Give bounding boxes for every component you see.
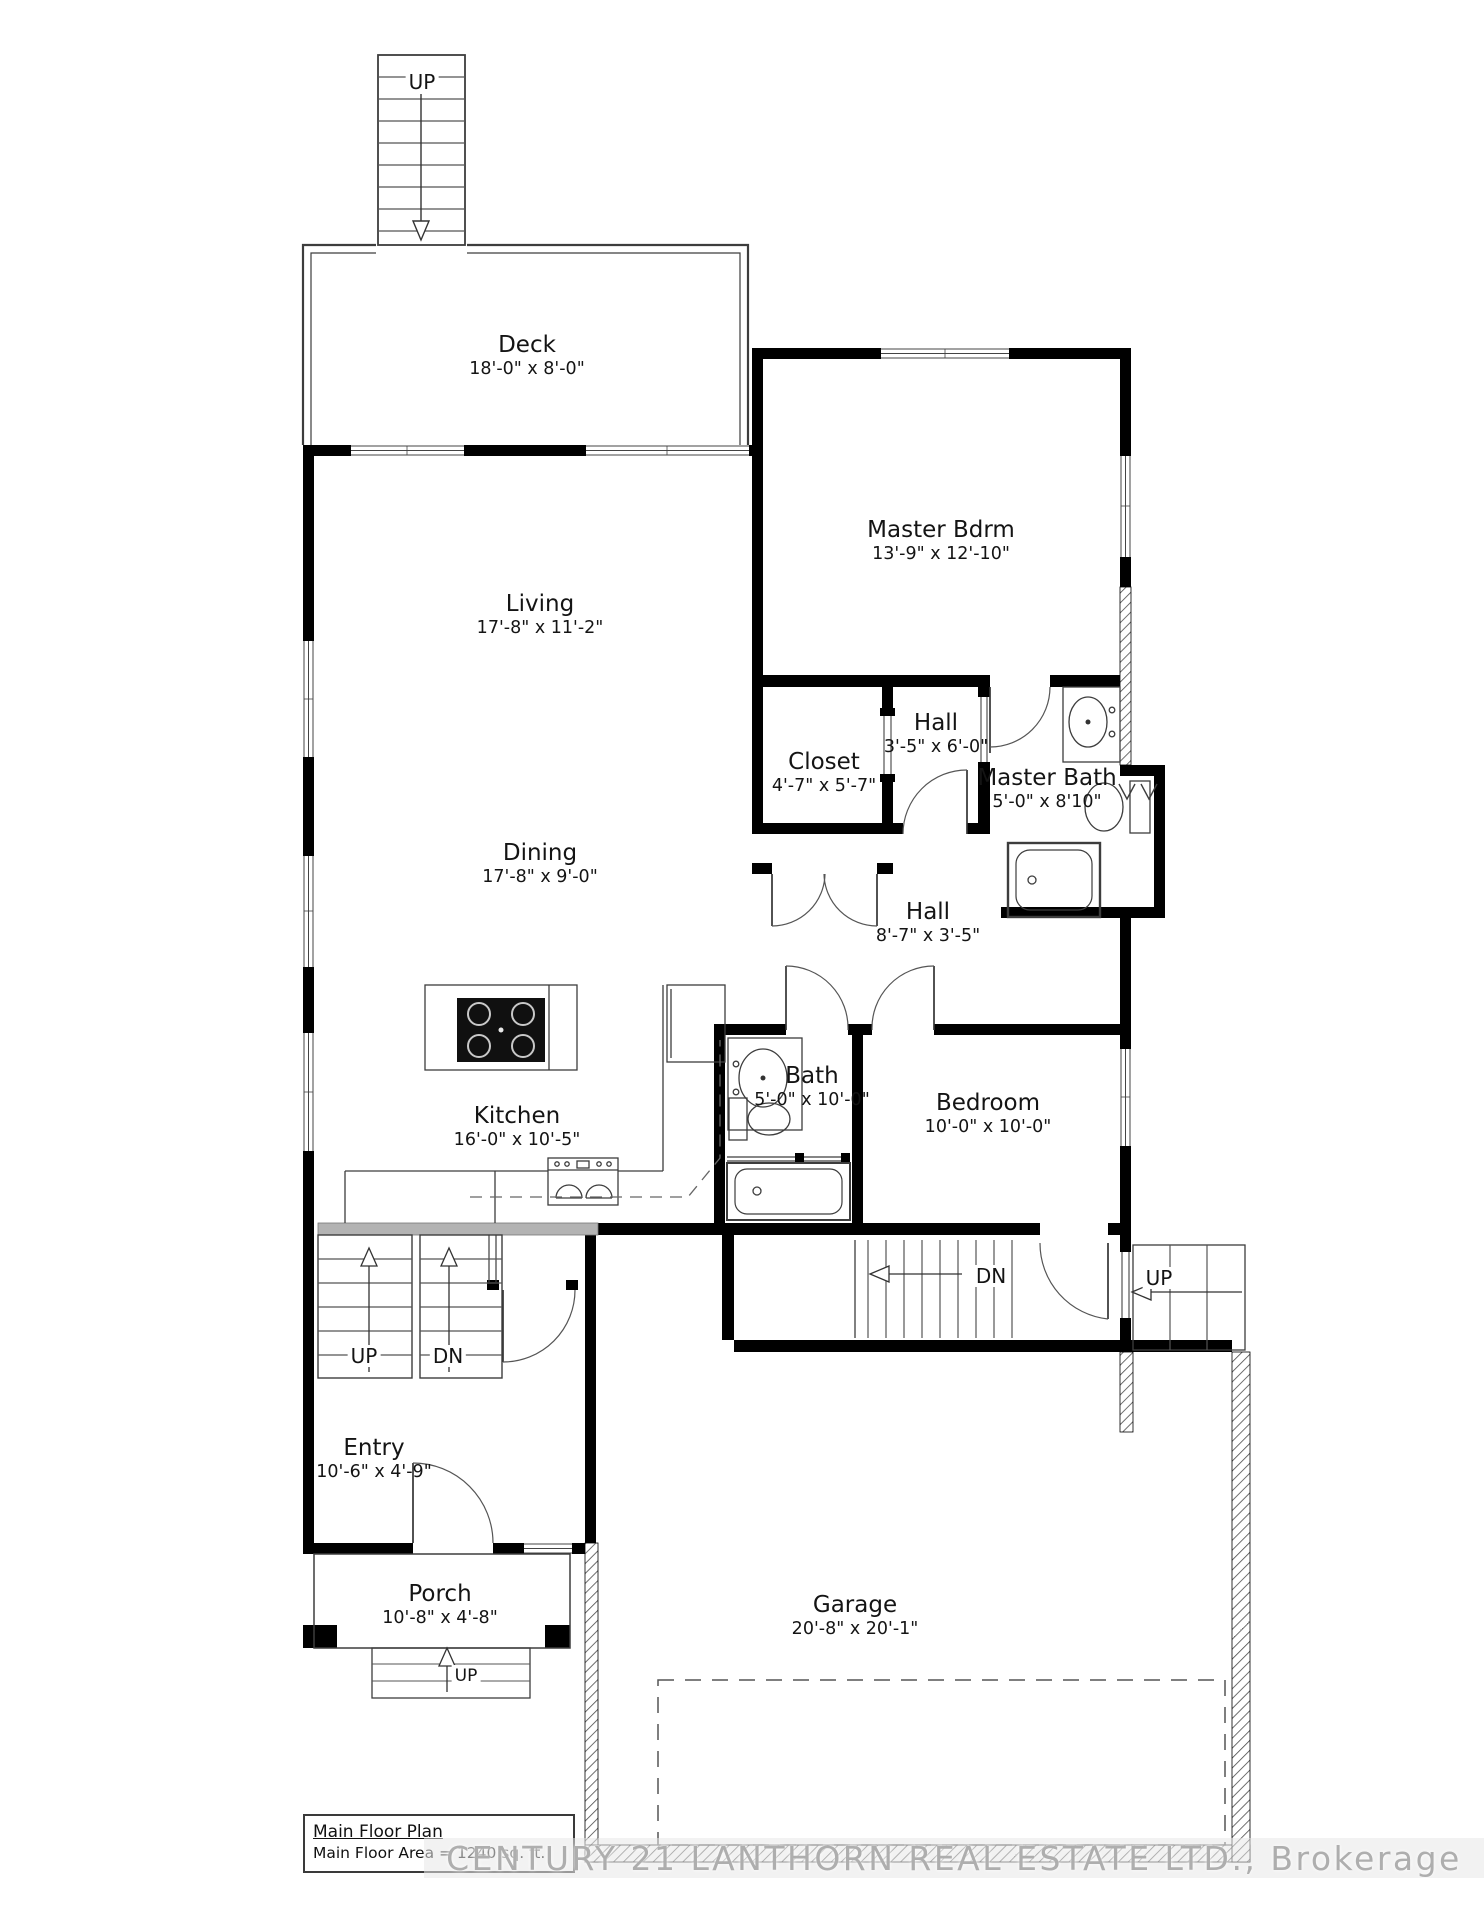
hall-door [903, 770, 967, 834]
sink-icon [1063, 687, 1120, 762]
window [1120, 1045, 1131, 1150]
room-label-master-bath: Master Bath 5'-0" x 8'10" [977, 765, 1116, 813]
bathtub-icon [1008, 843, 1100, 917]
room-label-master-bdrm: Master Bdrm 13'-9" x 12'-10" [867, 517, 1015, 565]
room-label-bedroom: Bedroom 10'-0" x 10'-0" [925, 1090, 1052, 1138]
window [1120, 452, 1131, 561]
room-label-hall-upper: Hall 3'-5" x 6'-0" [884, 710, 988, 758]
basement-stairs-dn-label: DN [973, 1265, 1009, 1287]
entry-stairs [318, 1235, 502, 1378]
window [582, 445, 753, 456]
entry-closet-door [487, 1280, 578, 1362]
deck-stairs-up-label: UP [406, 71, 439, 93]
brokerage-watermark: CENTURY 21 LANTHORN REAL ESTATE LTD., Br… [424, 1838, 1484, 1878]
room-label-living: Living 17'-8" x 11'-2" [477, 591, 604, 639]
kitchen-sink-icon [548, 1158, 618, 1205]
room-label-porch: Porch 10'-8" x 4'-8" [382, 1581, 498, 1629]
garage-dashed-outline [658, 1680, 1225, 1845]
room-label-deck: Deck 18'-0" x 8'-0" [469, 332, 585, 380]
window [303, 1029, 314, 1155]
stair-header [318, 1223, 598, 1235]
room-label-bath: Bath 5'-0" x 10'-0" [754, 1063, 870, 1111]
room-label-closet: Closet 4'-7" x 5'-7" [772, 749, 876, 797]
bath-door [786, 966, 848, 1030]
floor-plan-page: Deck 18'-0" x 8'-0" Living 17'-8" x 11'-… [0, 0, 1484, 1920]
basement-door [1040, 1243, 1108, 1319]
bifold-marks [1119, 784, 1157, 799]
room-label-garage: Garage 20'-8" x 20'-1" [792, 1592, 919, 1640]
shower-door [727, 1153, 850, 1162]
floor-plan-drawing [0, 0, 1484, 1920]
room-label-hall-lower: Hall 8'-7" x 3'-5" [876, 899, 980, 947]
side-entry-steps [1132, 1245, 1245, 1350]
up-arrow-icon [361, 1248, 377, 1266]
up-arrow-icon [441, 1248, 457, 1266]
room-label-dining: Dining 17'-8" x 9'-0" [482, 840, 598, 888]
porch-steps-up-label: UP [452, 1665, 481, 1687]
room-label-kitchen: Kitchen 16'-0" x 10'-5" [454, 1103, 581, 1151]
window [347, 445, 468, 456]
window [520, 1543, 576, 1554]
up-arrow-icon [439, 1648, 455, 1666]
master-bath-door [990, 687, 1050, 753]
entry-stairs-dn-label: DN [430, 1345, 466, 1367]
bathtub-icon [727, 1163, 850, 1220]
room-label-entry: Entry 10'-6" x 4'-9" [316, 1435, 432, 1483]
window [303, 637, 314, 761]
side-entry-up-label: UP [1143, 1267, 1176, 1289]
left-arrow-icon [870, 1266, 889, 1282]
window [877, 348, 1013, 359]
entry-stairs-up-label: UP [348, 1345, 381, 1367]
walls [303, 348, 1232, 1648]
window [303, 852, 314, 971]
basement-stairs [855, 1240, 1012, 1338]
double-doors [772, 874, 877, 926]
bedroom-door [872, 966, 934, 1030]
